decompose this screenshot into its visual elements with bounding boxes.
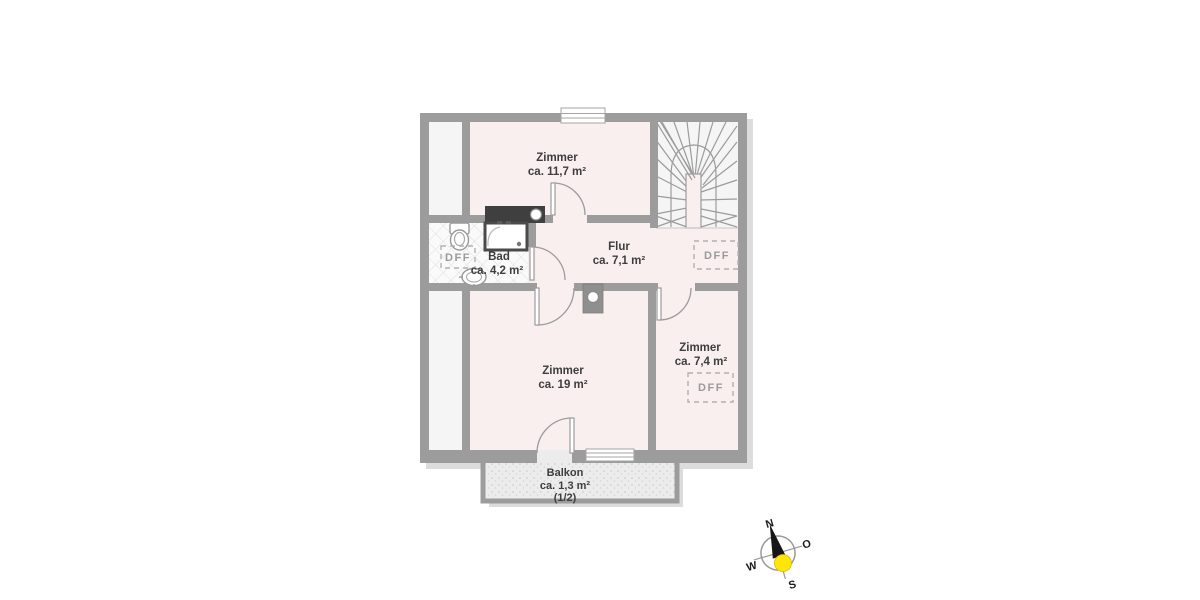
label-zimmer-top-name: Zimmer — [536, 152, 578, 164]
label-zimmer-large-area: ca. 19 m² — [538, 379, 587, 391]
room-zimmer-right — [656, 291, 738, 450]
floor-plan-page: DFF DFF DFF Zimmer ca. 11,7 m² Flur ca. … — [0, 0, 1200, 600]
doorway-zimmer-top — [553, 215, 587, 223]
label-balkon-name: Balkon — [547, 467, 584, 479]
wall-stair-left — [650, 122, 658, 228]
shower-icon — [485, 221, 527, 250]
skylight-flur-label: DFF — [704, 250, 730, 262]
compass-east-label: O — [801, 538, 813, 552]
label-flur-name: Flur — [608, 241, 630, 253]
wall-room-divider — [648, 291, 656, 450]
chimney-pipe-icon — [588, 292, 599, 303]
label-flur-area: ca. 7,1 m² — [593, 255, 646, 267]
label-balkon-share: (1/2) — [554, 492, 577, 504]
doorway-zimmer-large — [537, 283, 574, 291]
wall-mid-a2 — [587, 215, 658, 223]
wall-strip-top — [462, 122, 470, 223]
window-bottom — [586, 449, 634, 461]
label-zimmer-top-area: ca. 11,7 m² — [528, 166, 586, 178]
wall-strip-bottom — [462, 283, 470, 450]
skylight-bad-label: DFF — [445, 252, 471, 264]
balcony-doorway — [537, 450, 572, 463]
label-zimmer-right-area: ca. 7,4 m² — [675, 356, 728, 368]
compass-west-label: W — [745, 559, 759, 574]
wall-bad-right — [528, 223, 536, 247]
label-bad-name: Bad — [488, 251, 510, 263]
window-top — [561, 108, 605, 123]
label-bad-area: ca. 4,2 m² — [471, 265, 524, 277]
label-zimmer-right-name: Zimmer — [679, 342, 721, 354]
compass-north-label: N — [764, 517, 775, 531]
pipe-icon — [531, 209, 542, 220]
label-zimmer-large-name: Zimmer — [542, 365, 584, 377]
floor-plan-drawing: DFF DFF DFF Zimmer ca. 11,7 m² Flur ca. … — [0, 0, 1200, 600]
chimney-block — [583, 284, 603, 313]
label-balkon-area: ca. 1,3 m² — [540, 480, 590, 492]
doorway-zimmer-right — [658, 283, 695, 291]
skylight-zimmer-right-label: DFF — [698, 382, 724, 394]
compass-icon: N O S W — [735, 509, 822, 600]
wall-mid-b3 — [695, 283, 747, 291]
staircase — [656, 121, 738, 228]
duct-block — [485, 206, 545, 223]
compass-south-label: S — [787, 578, 797, 592]
